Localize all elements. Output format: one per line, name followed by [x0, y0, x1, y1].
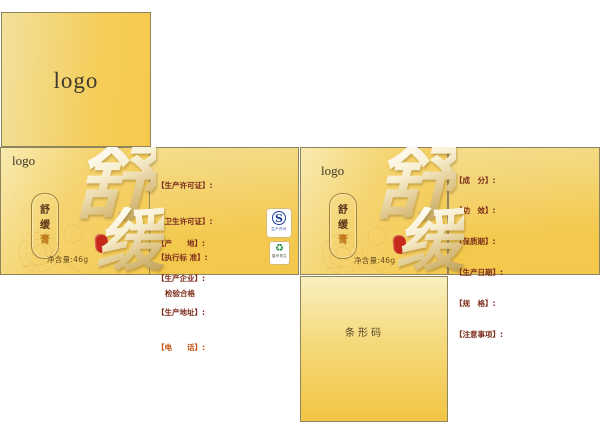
- red-seal: [94, 234, 108, 254]
- recycle-caption: 循环再生: [272, 254, 287, 259]
- net-weight: 净含量:46g: [47, 254, 88, 265]
- barcode-label: 条形码: [345, 324, 384, 339]
- peony-watermark-icon: [1, 220, 91, 276]
- lid-logo: logo: [2, 68, 150, 94]
- qs-certification-badge: S 生产许可: [267, 209, 291, 237]
- front-panel-left: logo 舒 缓 膏 净含量:46g: [0, 147, 150, 275]
- info-line: 【规 格】:: [455, 299, 503, 309]
- brand-logo: logo: [321, 163, 344, 179]
- info-line: 【产 地】:: [157, 238, 205, 250]
- info-line: 【功 效】:: [455, 206, 503, 216]
- info-line: 【保质期】:: [455, 237, 503, 247]
- brand-logo: logo: [12, 153, 35, 169]
- peony-watermark-icon: [305, 222, 395, 278]
- pill-char: 舒: [338, 205, 348, 217]
- packaging-dieline-sheet: logo logo 舒 缓 膏 净含量:46g 【生产许可证】: 【卫生许可证】…: [0, 0, 600, 425]
- lid-panel: logo: [1, 12, 151, 147]
- recycle-badge: ♻ 循环再生: [270, 242, 289, 264]
- info-line: 【生产地址】:: [157, 307, 205, 319]
- barcode-panel: 条形码: [300, 276, 448, 422]
- info-panel-center: 【生产许可证】: 【卫生许可证】: 【执行标 准】: 检验合格 【产 地】: 【…: [149, 147, 299, 275]
- manufacturer-lines: 【产 地】: 【生产企业】: 【生产地址】: 【电 话】:: [157, 215, 205, 376]
- info-line-phone: 【电 话】:: [157, 342, 205, 354]
- info-panel-right: 【成 分】: 【功 效】: 【保质期】: 【生产日期】: 【规 格】: 【注意事…: [448, 147, 600, 275]
- info-line: 【成 分】:: [455, 176, 503, 186]
- red-seal: [392, 235, 406, 255]
- qs-caption: 生产许可: [271, 227, 287, 232]
- info-line: 【注意事项】:: [455, 330, 503, 340]
- info-line: 【生产许可证】:: [157, 180, 213, 192]
- net-weight: 净含量:46g: [354, 255, 395, 266]
- front-panel-right: logo 舒 缓 膏 净含量:46g: [300, 147, 448, 275]
- info-line: 【生产日期】:: [455, 268, 503, 278]
- product-info-lines: 【成 分】: 【功 效】: 【保质期】: 【生产日期】: 【规 格】: 【注意事…: [455, 155, 503, 361]
- qs-mark-icon: S: [272, 211, 286, 225]
- info-line: 【生产企业】:: [157, 273, 205, 285]
- recycle-icon: ♻: [275, 243, 284, 254]
- pill-char: 舒: [40, 205, 50, 217]
